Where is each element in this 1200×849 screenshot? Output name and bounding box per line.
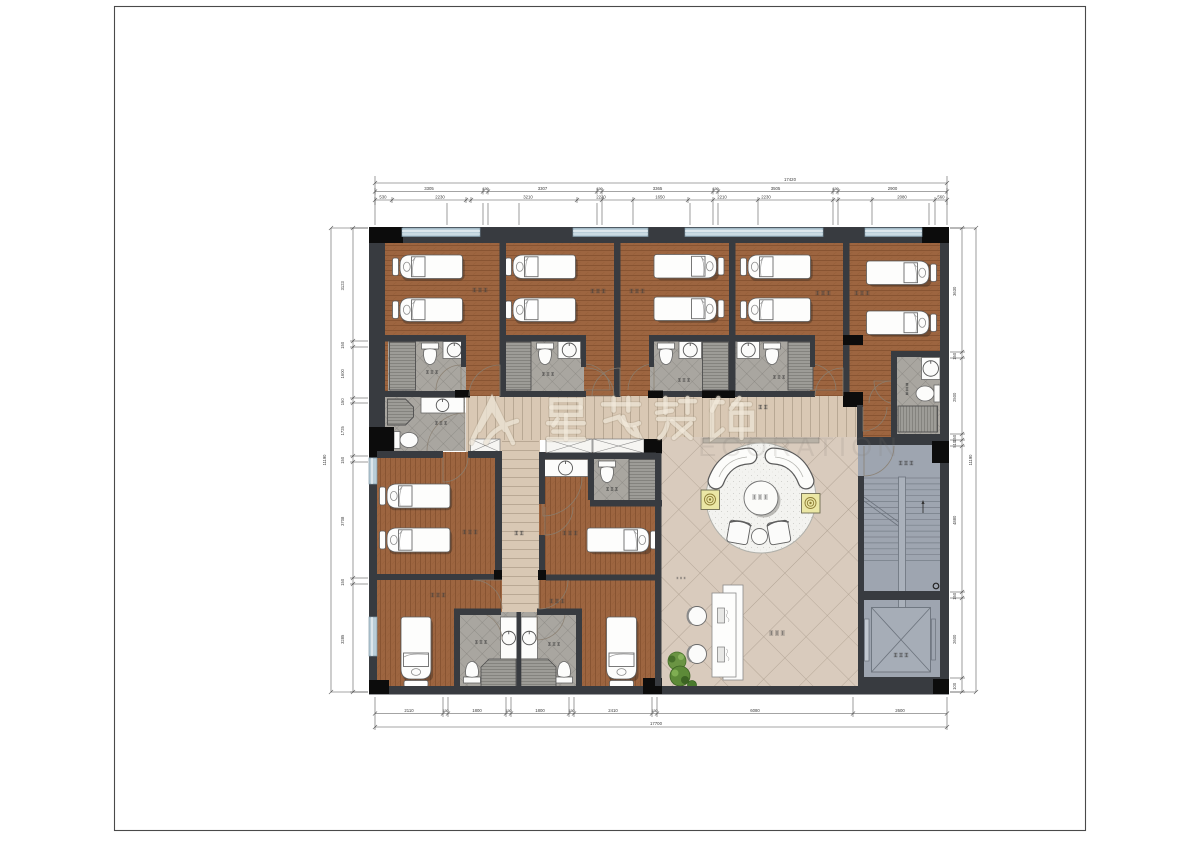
svg-text:150: 150 bbox=[568, 709, 574, 713]
svg-text:ECORATION: ECORATION bbox=[698, 432, 902, 462]
svg-text:150: 150 bbox=[596, 187, 602, 191]
svg-text:11190: 11190 bbox=[322, 454, 327, 465]
svg-text:150: 150 bbox=[505, 709, 511, 713]
svg-text:150: 150 bbox=[952, 592, 957, 600]
svg-text:530: 530 bbox=[379, 194, 387, 199]
svg-text:1600: 1600 bbox=[340, 369, 345, 379]
svg-text:150: 150 bbox=[651, 709, 657, 713]
svg-text:2600: 2600 bbox=[895, 708, 905, 713]
svg-text:2230: 2230 bbox=[761, 194, 771, 199]
svg-text:510: 510 bbox=[952, 440, 957, 448]
svg-text:560: 560 bbox=[937, 194, 945, 199]
svg-text:150: 150 bbox=[340, 578, 345, 586]
svg-text:150: 150 bbox=[952, 434, 957, 442]
svg-text:150: 150 bbox=[712, 187, 718, 191]
svg-text:17700: 17700 bbox=[650, 721, 663, 726]
svg-text:1800: 1800 bbox=[535, 708, 545, 713]
svg-text:1725: 1725 bbox=[340, 426, 345, 436]
svg-text:2410: 2410 bbox=[608, 708, 618, 713]
svg-text:3210: 3210 bbox=[523, 194, 533, 199]
svg-text:150: 150 bbox=[482, 187, 488, 191]
svg-text:3305: 3305 bbox=[424, 186, 434, 191]
svg-text:2110: 2110 bbox=[404, 708, 414, 713]
svg-text:1800: 1800 bbox=[472, 708, 482, 713]
svg-text:3630: 3630 bbox=[952, 286, 957, 296]
svg-text:3285: 3285 bbox=[340, 634, 345, 644]
svg-text:11190: 11190 bbox=[968, 454, 973, 465]
svg-text:2500: 2500 bbox=[952, 392, 957, 402]
svg-text:150: 150 bbox=[442, 709, 448, 713]
svg-text:150: 150 bbox=[952, 352, 957, 360]
svg-text:150: 150 bbox=[340, 398, 345, 406]
svg-text:3307: 3307 bbox=[538, 186, 548, 191]
svg-text:150: 150 bbox=[340, 341, 345, 349]
svg-text:3123: 3123 bbox=[340, 281, 345, 291]
svg-text:100: 100 bbox=[952, 682, 957, 690]
svg-text:1650: 1650 bbox=[655, 194, 665, 199]
svg-text:2230: 2230 bbox=[596, 194, 606, 199]
svg-text:4880: 4880 bbox=[952, 515, 957, 525]
svg-text:150: 150 bbox=[340, 456, 345, 464]
svg-text:2080: 2080 bbox=[897, 194, 907, 199]
svg-text:6080: 6080 bbox=[750, 708, 760, 713]
svg-text:3708: 3708 bbox=[340, 516, 345, 526]
svg-text:3505: 3505 bbox=[771, 186, 781, 191]
svg-text:3365: 3365 bbox=[653, 186, 663, 191]
svg-text:17420: 17420 bbox=[784, 177, 797, 182]
svg-text:2210: 2210 bbox=[717, 194, 727, 199]
svg-text:2230: 2230 bbox=[435, 194, 445, 199]
svg-text:150: 150 bbox=[832, 187, 838, 191]
svg-text:2600: 2600 bbox=[952, 634, 957, 644]
svg-text:2900: 2900 bbox=[888, 186, 898, 191]
